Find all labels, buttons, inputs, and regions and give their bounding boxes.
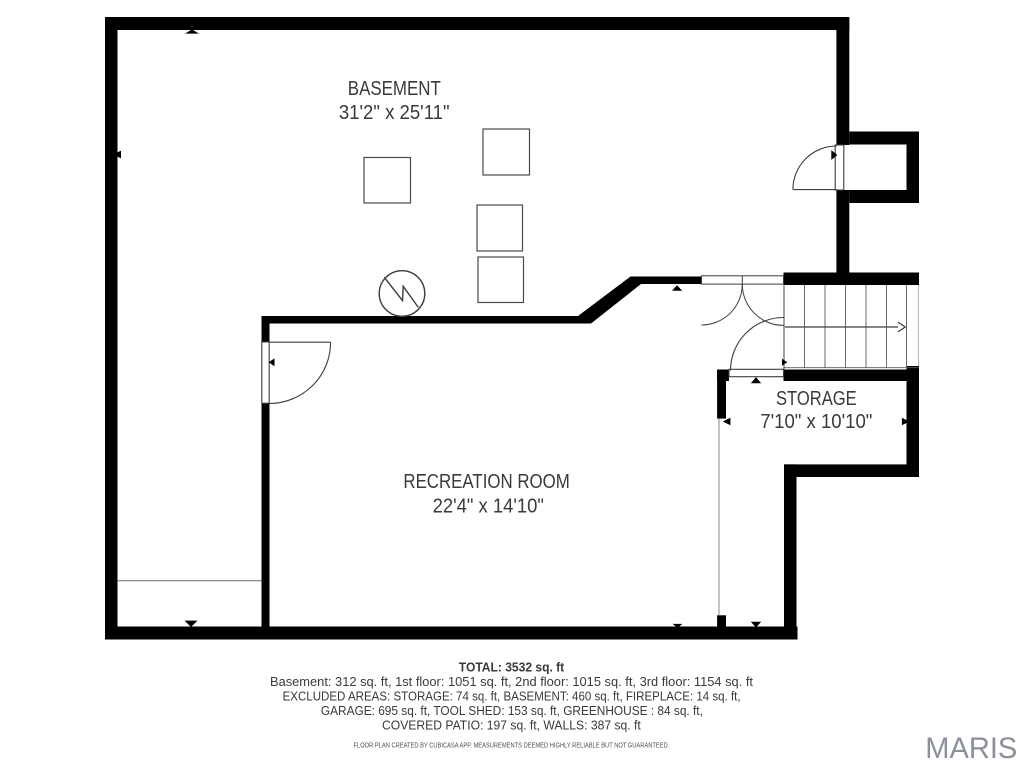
svg-text:GARAGE: 695 sq. ft, TOOL SHED:: GARAGE: 695 sq. ft, TOOL SHED: 153 sq. f…	[321, 703, 703, 718]
svg-text:EXCLUDED AREAS: STORAGE: 74 sq: EXCLUDED AREAS: STORAGE: 74 sq. ft, BASE…	[283, 689, 741, 704]
svg-text:7'10" x 10'10": 7'10" x 10'10"	[760, 411, 872, 433]
svg-text:RECREATION ROOM: RECREATION ROOM	[403, 471, 569, 493]
svg-text:TOTAL: 3532 sq. ft: TOTAL: 3532 sq. ft	[459, 659, 565, 674]
svg-text:COVERED PATIO: 197 sq. ft, WAL: COVERED PATIO: 197 sq. ft, WALLS: 387 sq…	[382, 718, 641, 733]
svg-text:MARIS: MARIS	[925, 732, 1017, 765]
svg-text:BASEMENT: BASEMENT	[348, 78, 441, 100]
svg-text:STORAGE: STORAGE	[776, 388, 857, 410]
svg-text:FLOOR PLAN CREATED BY CUBICASA: FLOOR PLAN CREATED BY CUBICASA APP. MEAS…	[354, 743, 670, 750]
svg-text:31'2" x 25'11": 31'2" x 25'11"	[339, 102, 450, 124]
svg-text:22'4" x 14'10": 22'4" x 14'10"	[433, 496, 544, 518]
svg-text:Basement: 312 sq. ft, 1st floo: Basement: 312 sq. ft, 1st floor: 1051 sq…	[270, 674, 753, 689]
